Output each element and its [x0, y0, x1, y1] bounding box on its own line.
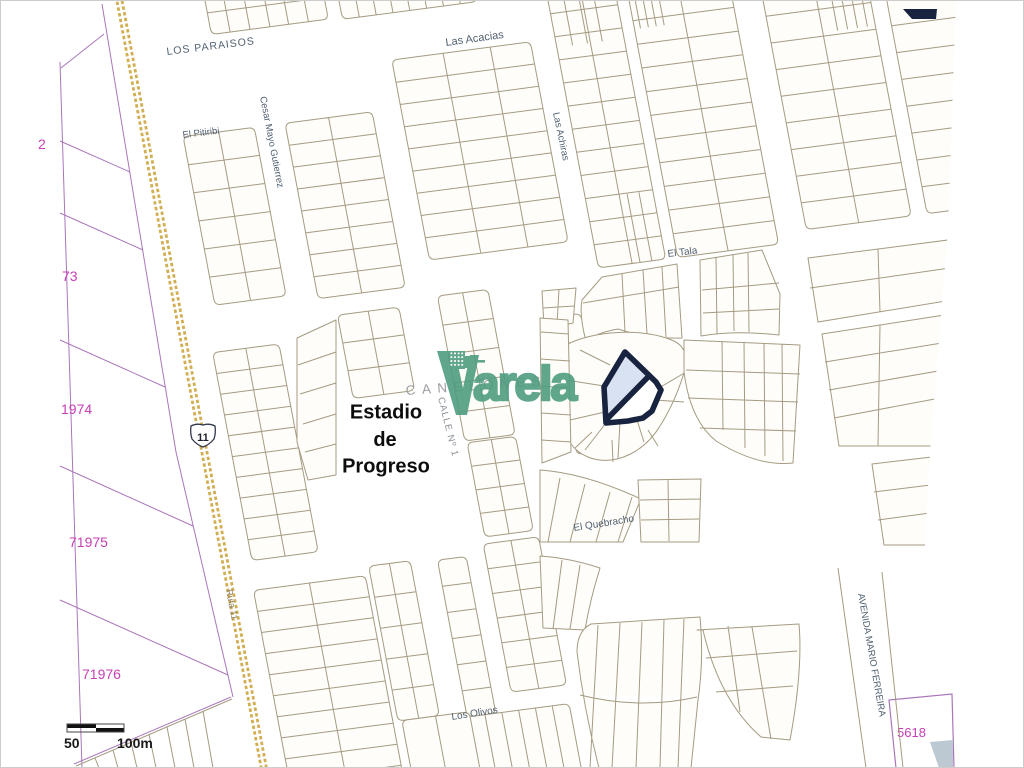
svg-text:de: de	[373, 429, 396, 451]
svg-text:5618: 5618	[897, 725, 926, 740]
svg-text:71975: 71975	[69, 534, 108, 550]
svg-text:Estadio: Estadio	[350, 402, 422, 424]
svg-text:1974: 1974	[61, 401, 92, 417]
svg-text:11: 11	[197, 432, 209, 444]
svg-text:Progreso: Progreso	[342, 456, 430, 478]
svg-text:arela: arela	[473, 358, 577, 411]
svg-text:71976: 71976	[82, 666, 121, 682]
svg-text:50: 50	[64, 735, 80, 751]
svg-text:100m: 100m	[117, 735, 153, 751]
svg-text:2: 2	[38, 136, 46, 152]
svg-text:73: 73	[62, 268, 78, 284]
